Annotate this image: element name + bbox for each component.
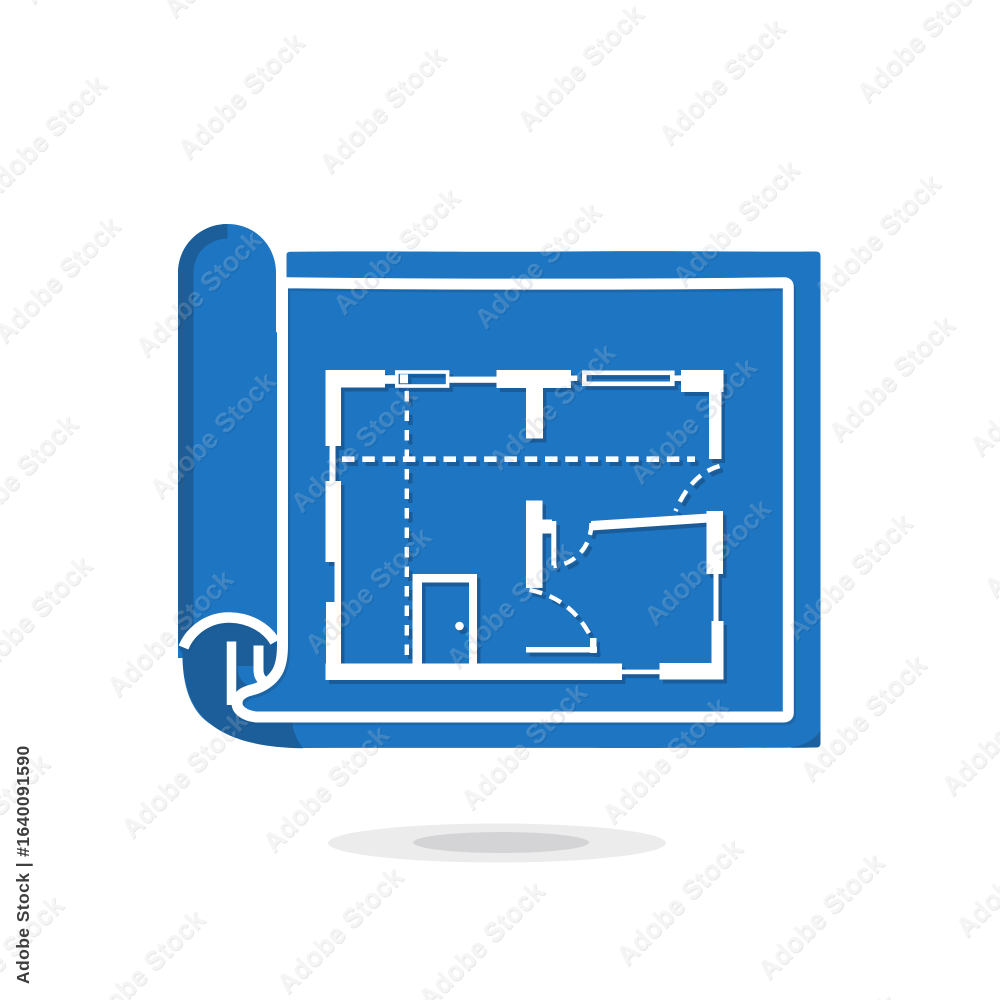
svg-text:Adobe Stock | #1640091590: Adobe Stock | #1640091590 (13, 745, 33, 984)
